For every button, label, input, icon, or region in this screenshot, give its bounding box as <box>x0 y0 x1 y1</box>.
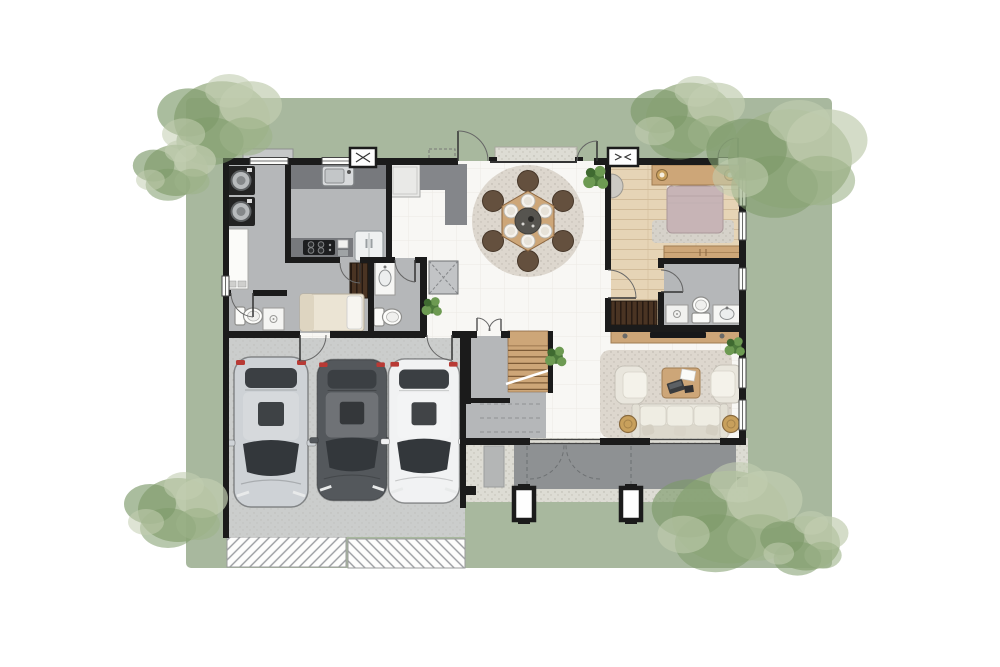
window <box>222 276 229 296</box>
burner <box>308 248 314 254</box>
side-table <box>620 416 637 433</box>
burner <box>318 242 324 248</box>
wall-kitchen-bottom <box>285 257 340 263</box>
ac-box <box>608 148 638 166</box>
vent-unit <box>350 148 376 167</box>
terrace-column <box>621 484 641 524</box>
stair-landing <box>508 331 548 346</box>
plate-inner <box>507 227 515 235</box>
wall-garage-right <box>460 335 466 508</box>
dish-rack <box>338 250 348 256</box>
dining-chair <box>483 231 504 252</box>
plate-inner <box>541 207 549 215</box>
pillow-shape <box>673 425 686 437</box>
car-suv-silver <box>226 357 316 507</box>
window <box>739 358 746 388</box>
wall-garage-top <box>223 331 300 338</box>
single-bed <box>300 294 364 331</box>
washer-drum-center <box>237 176 246 185</box>
table-top <box>620 416 637 433</box>
bedroom-slat-closet <box>611 301 657 325</box>
vanity-tap <box>384 266 387 269</box>
wall-top <box>288 158 322 165</box>
window <box>739 212 746 240</box>
wall-maid-bath <box>368 257 374 337</box>
table-top <box>723 416 740 433</box>
toilet-seat <box>696 300 707 310</box>
wall-left <box>223 158 229 538</box>
coffee-table <box>662 368 700 398</box>
dry-counter-side <box>445 190 467 225</box>
dining-chair <box>483 191 504 212</box>
dining-chair <box>518 171 539 192</box>
burner <box>318 248 324 254</box>
plate-inner <box>524 197 532 205</box>
car-sedan-white <box>381 359 467 503</box>
sofa-cushion <box>667 406 693 426</box>
toilet <box>374 308 402 326</box>
driveway-hatch-right <box>348 539 465 568</box>
wall-right <box>739 290 746 330</box>
terrace-corner-block <box>466 486 476 495</box>
floor-plan-page <box>0 0 1000 667</box>
pantry-cabinet <box>390 164 420 197</box>
wall-bedroom-left <box>605 161 611 270</box>
dry-counter-top <box>420 164 467 190</box>
dining-chair <box>553 191 574 212</box>
window <box>322 158 352 165</box>
fridge-handle <box>366 239 368 248</box>
floor-plan-canvas <box>0 0 1000 667</box>
dish-rack <box>338 240 348 248</box>
remote-body <box>684 385 694 393</box>
kitchen-sink <box>322 166 354 186</box>
sofa-cushion <box>640 406 666 426</box>
cooktop <box>303 240 335 255</box>
sofa-cushion <box>694 406 720 426</box>
shower-drain <box>273 318 275 320</box>
washer-dial <box>247 199 252 203</box>
bed-pillow <box>347 296 362 329</box>
wall-storage-left <box>466 336 471 404</box>
blanket <box>667 186 723 233</box>
terrace-step <box>484 446 504 487</box>
plate-inner <box>541 227 549 235</box>
knob <box>329 244 331 246</box>
console-decor <box>720 334 725 339</box>
wall-bath1-top <box>253 290 287 296</box>
bed-blanket-fold <box>300 294 314 331</box>
wall-bottom <box>600 438 650 445</box>
stair-treads <box>508 346 548 392</box>
window <box>739 268 746 290</box>
dining-chair <box>518 251 539 272</box>
wall-ensuite-top <box>658 258 741 264</box>
bathroom-vanity <box>375 260 395 295</box>
side-table <box>723 416 740 433</box>
dining-chair <box>553 231 574 252</box>
vanity-basin <box>379 270 391 286</box>
place-setting <box>521 234 535 248</box>
teapot <box>528 216 534 222</box>
throw-pillow <box>673 425 686 437</box>
vanity-basin <box>720 309 734 320</box>
wall-bedroom-bottom <box>605 325 746 332</box>
armchair <box>711 365 743 403</box>
bowl <box>532 225 535 228</box>
wall-ensuite-left <box>658 292 664 325</box>
ensuite-toilet <box>692 297 710 323</box>
refrigerator <box>355 231 383 261</box>
wall-utility-kitchen <box>285 161 291 257</box>
paper-sheet <box>680 369 696 381</box>
sink-faucet <box>347 170 351 174</box>
wall-right <box>739 388 746 400</box>
burner <box>308 242 314 248</box>
sofa <box>632 404 728 438</box>
lazy-susan <box>515 208 541 234</box>
wall-storage-top <box>501 331 510 338</box>
foyer-closet <box>429 261 458 294</box>
washing-machine <box>227 166 255 195</box>
bedside-lamp <box>657 170 668 181</box>
plate-inner <box>524 237 532 245</box>
fridge-handle <box>371 239 373 248</box>
papers <box>680 369 696 381</box>
sink-basin <box>325 169 344 183</box>
place-setting <box>521 194 535 208</box>
armchair <box>615 366 647 404</box>
driveway-hatch-left <box>227 537 346 567</box>
vanity-tap <box>726 307 729 310</box>
remote <box>684 385 694 393</box>
wall-bath-foyer <box>420 257 427 337</box>
maid-wardrobe-slats <box>350 263 368 298</box>
wall-garage-top <box>330 331 425 338</box>
wall-bottom <box>466 438 530 445</box>
built-in-wardrobe <box>664 246 741 259</box>
ensuite-vanity <box>713 305 740 323</box>
shower-tray <box>263 308 284 330</box>
wall-kitchen-bottom <box>360 257 395 263</box>
wall-storage-bottom <box>466 398 510 403</box>
wall-kitchen-right <box>386 161 392 257</box>
knob <box>329 249 331 251</box>
wall-ensuite-left <box>658 258 664 268</box>
terrace-column <box>514 484 534 524</box>
plate-inner <box>507 207 515 215</box>
utility-control <box>238 281 246 287</box>
console-decor <box>623 334 628 339</box>
window <box>739 400 746 430</box>
washer-drum-center <box>237 207 246 216</box>
wall-storage-top <box>466 331 477 338</box>
table-centerpiece <box>515 208 541 234</box>
ensuite-shower <box>666 305 688 323</box>
washing-machine <box>227 197 255 226</box>
ac-unit <box>608 148 638 166</box>
shower-drain <box>676 313 678 315</box>
bowl <box>522 223 525 226</box>
car-suv-dark <box>310 360 395 501</box>
toilet-tank <box>692 313 710 323</box>
wall-bottom <box>720 438 746 445</box>
tv-screen <box>650 332 706 338</box>
washer-dial <box>247 168 252 172</box>
window <box>250 158 288 165</box>
